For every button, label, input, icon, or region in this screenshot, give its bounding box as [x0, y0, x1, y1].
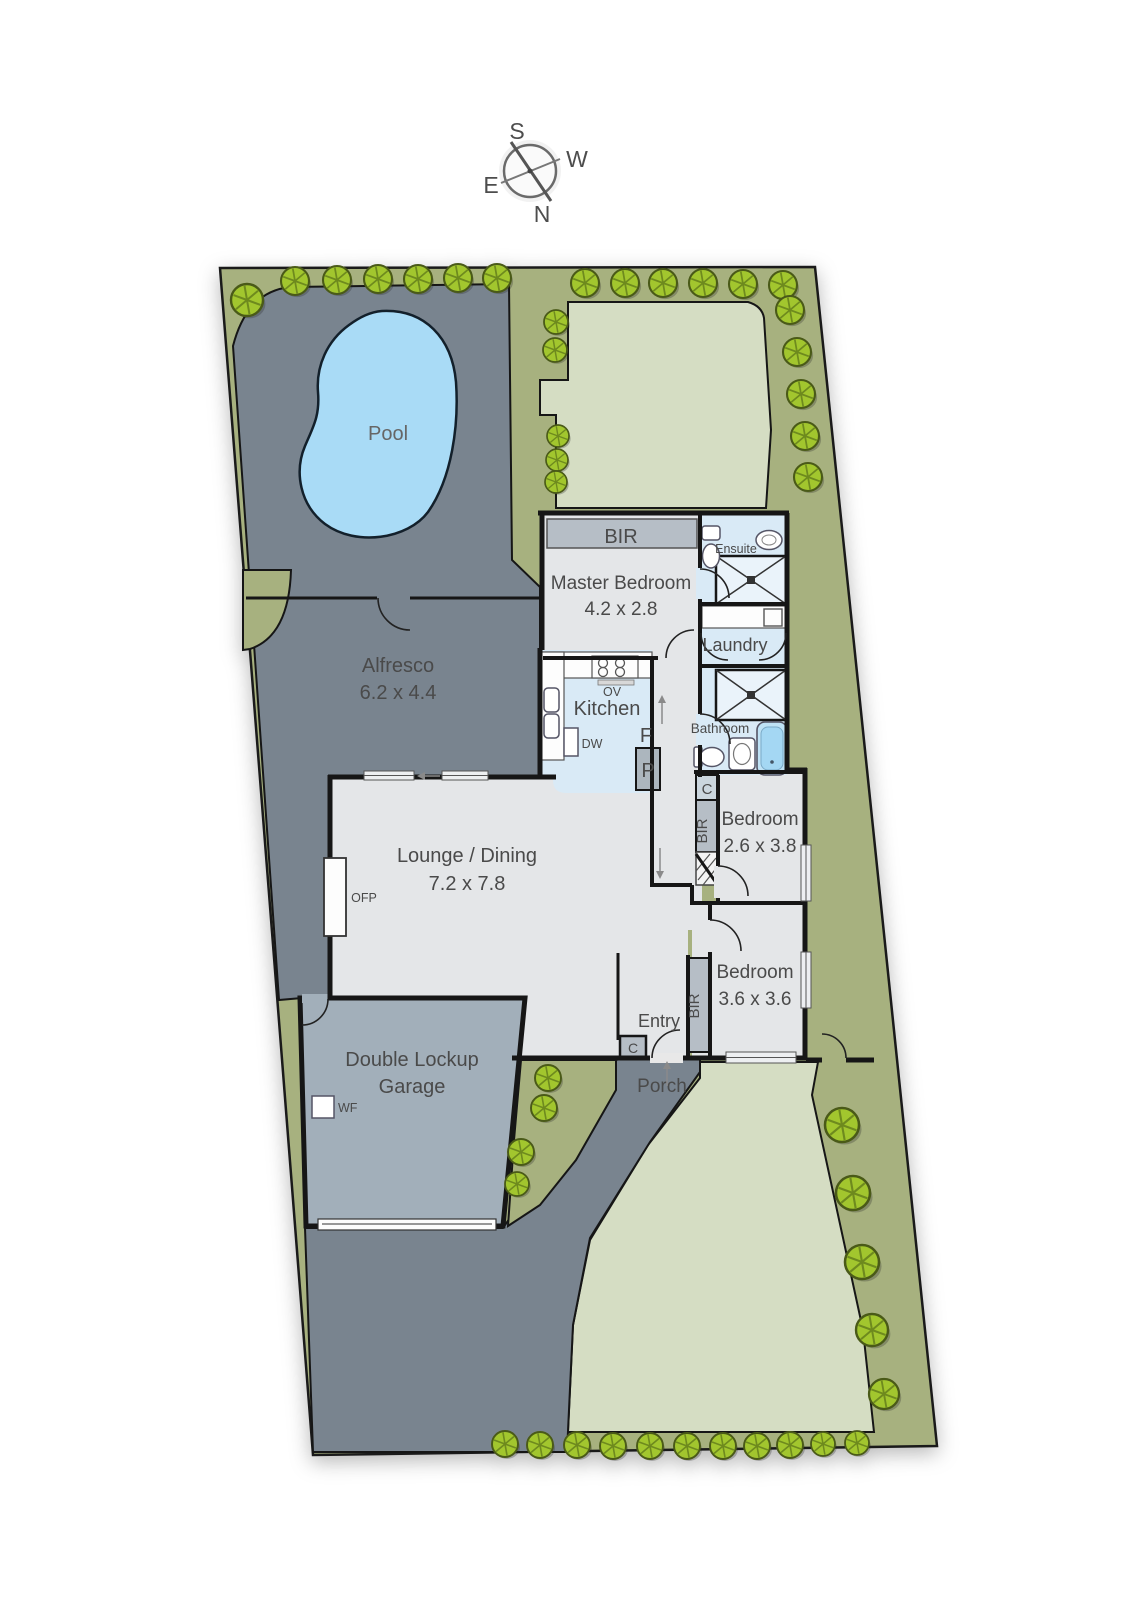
bedroom3-label: Bedroom — [716, 962, 793, 983]
bathroom-label: Bathroom — [691, 721, 750, 736]
bedroom2-dims: 2.6 x 3.8 — [724, 836, 797, 857]
fireplace-label: OFP — [351, 891, 377, 905]
doorway-gap — [706, 920, 715, 952]
alfresco-label: Alfresco — [362, 655, 434, 677]
tree-icon — [527, 1432, 555, 1460]
tree-icon — [231, 284, 265, 318]
master-bedroom-dims: 4.2 x 2.8 — [585, 599, 658, 620]
shower-drain — [747, 576, 755, 584]
tree-icon — [600, 1433, 628, 1461]
tree-icon — [571, 269, 601, 299]
bedroom3-dims: 3.6 x 3.6 — [719, 989, 792, 1010]
tree-icon — [364, 265, 394, 295]
garage-doorway-gap — [302, 994, 328, 1003]
garage-label-line2: Garage — [379, 1076, 446, 1098]
tree-icon — [783, 338, 813, 368]
compass-north-label: N — [534, 201, 551, 227]
compass-south-label: S — [509, 118, 524, 144]
basin-icon — [756, 531, 782, 550]
lounge-dims: 7.2 x 7.8 — [429, 873, 506, 895]
tree-icon — [544, 310, 570, 336]
tree-icon — [649, 269, 679, 299]
tree-icon — [729, 270, 759, 300]
fireplace — [324, 858, 346, 936]
wf-label: WF — [338, 1101, 358, 1115]
tree-icon — [545, 471, 569, 495]
floor-plan-page: S W E N Pool Alfresco 6.2 x 4.4 Porch — [0, 0, 1131, 1600]
tree-icon — [611, 269, 641, 299]
bedroom3-bir-label: BIR — [686, 993, 703, 1018]
tree-icon — [323, 266, 353, 296]
tree-icon — [531, 1095, 559, 1123]
tree-icon — [710, 1433, 738, 1461]
shower-drain — [747, 691, 755, 699]
tree-icon — [535, 1065, 563, 1093]
compass-pivot — [528, 169, 533, 174]
master-bedroom-label: Master Bedroom — [551, 573, 691, 594]
tree-icon — [546, 449, 570, 473]
entry-label: Entry — [638, 1011, 680, 1031]
alfresco-dims: 6.2 x 4.4 — [360, 682, 437, 704]
doorway-gap — [664, 654, 695, 663]
compass-east-label: E — [483, 172, 498, 198]
wf-fixture — [312, 1096, 334, 1118]
oven-label: OV — [603, 685, 622, 699]
porch-label: Porch — [637, 1076, 687, 1097]
ensuite-label: Ensuite — [715, 542, 757, 556]
tree-icon — [505, 1172, 531, 1198]
tree-icon — [845, 1431, 871, 1457]
tree-icon — [508, 1139, 536, 1167]
tree-icon — [444, 264, 474, 294]
tree-icon — [689, 269, 719, 299]
laundry-label: Laundry — [702, 635, 767, 655]
site-plan: S W E N Pool Alfresco 6.2 x 4.4 Porch — [0, 0, 1131, 1600]
tree-icon — [811, 1432, 837, 1458]
backyard-lawn — [540, 302, 771, 508]
tree-icon — [836, 1176, 873, 1213]
compass-rose: S W E N — [483, 118, 588, 227]
kitchen-sink — [544, 714, 559, 738]
pool-label: Pool — [368, 423, 408, 445]
tree-icon — [794, 463, 824, 493]
tree-icon — [564, 1432, 592, 1460]
bedroom2-bir-label: BIR — [694, 818, 711, 843]
tree-icon — [869, 1379, 901, 1411]
tree-icon — [281, 267, 311, 297]
bathtub-drain — [770, 760, 774, 764]
tree-icon — [825, 1108, 862, 1145]
tree-icon — [543, 338, 569, 364]
master-bir-label: BIR — [604, 526, 637, 548]
lounge-label: Lounge / Dining — [397, 845, 537, 867]
tree-icon — [776, 296, 806, 326]
tree-icon — [845, 1245, 882, 1282]
tree-icon — [787, 380, 817, 410]
pantry-label: P — [641, 760, 654, 782]
garage-label-line1: Double Lockup — [345, 1049, 478, 1071]
tree-icon — [547, 425, 571, 449]
doorway-gap — [696, 568, 705, 599]
tree-icon — [404, 265, 434, 295]
kitchen-label: Kitchen — [574, 698, 641, 720]
tree-icon — [637, 1433, 665, 1461]
doorway-gap — [714, 866, 723, 898]
tree-icon — [674, 1433, 702, 1461]
toilet-icon — [700, 748, 724, 767]
kitchen-sink — [544, 688, 559, 712]
dishwasher — [564, 728, 578, 756]
compass-west-label: W — [566, 146, 588, 172]
entry-cupboard-label: C — [628, 1040, 638, 1056]
tree-icon — [744, 1433, 772, 1461]
tree-icon — [791, 422, 821, 452]
toilet-icon — [702, 526, 720, 540]
front-doorway-gap — [650, 1053, 683, 1063]
fridge-label: F — [640, 725, 652, 747]
tree-icon — [492, 1431, 520, 1459]
bedroom2-label: Bedroom — [721, 809, 798, 830]
hall-cupboard-label: C — [702, 781, 713, 798]
dishwasher-label: DW — [582, 737, 603, 751]
tree-icon — [777, 1432, 805, 1460]
tree-icon — [856, 1314, 890, 1348]
tree-icon — [483, 264, 513, 294]
